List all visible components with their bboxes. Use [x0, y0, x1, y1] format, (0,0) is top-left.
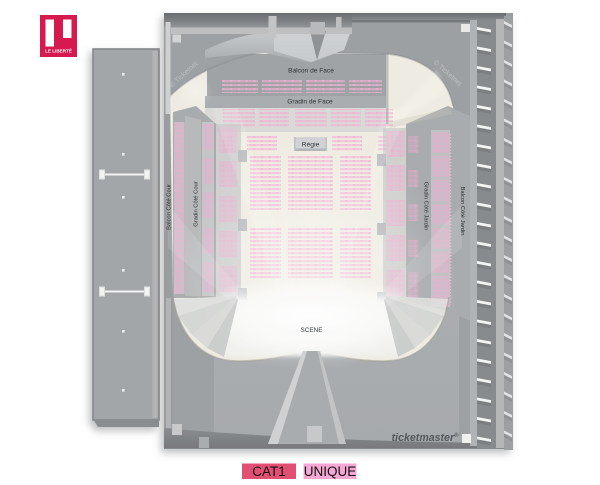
svg-text:Gradin de Face: Gradin de Face [287, 99, 333, 106]
svg-text:LE LIBERTÉ: LE LIBERTÉ [45, 47, 72, 54]
svg-text:Gradin Côté Jardin: Gradin Côté Jardin [423, 182, 429, 231]
svg-text:CAT1: CAT1 [252, 464, 286, 479]
svg-text:Balcon Côté Jardin: Balcon Côté Jardin [459, 187, 465, 236]
svg-text:Balcon Côté Cour: Balcon Côté Cour [167, 184, 173, 230]
svg-text:Balcon de Face: Balcon de Face [288, 68, 334, 75]
svg-text:Gradin Côté Cour: Gradin Côté Cour [194, 181, 200, 226]
svg-text:UNIQUE: UNIQUE [304, 464, 357, 479]
svg-text:SCENE: SCENE [300, 327, 322, 334]
svg-text:ticketmaster®: ticketmaster® [392, 432, 459, 444]
